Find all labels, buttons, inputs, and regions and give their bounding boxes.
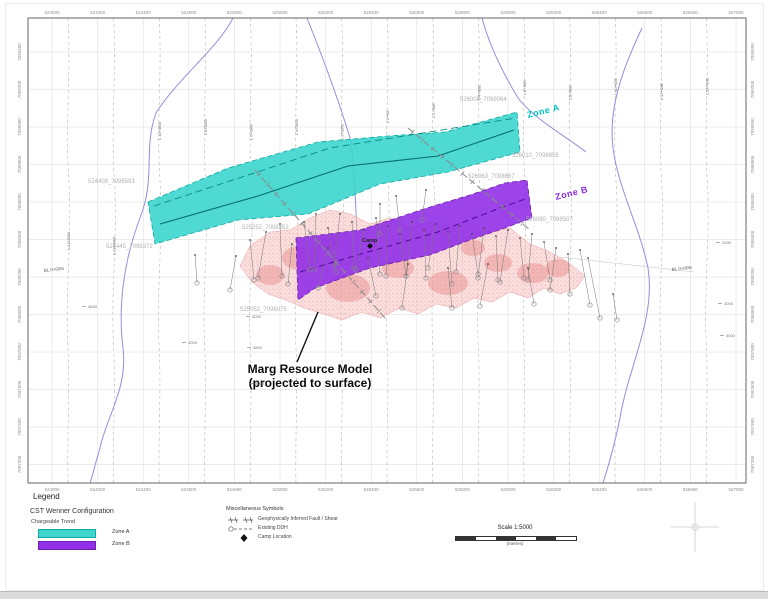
survey-line-label: L 8+00W — [203, 119, 208, 135]
survey-line-label: L 6+00E — [522, 80, 527, 95]
station-label: 4500 — [253, 345, 263, 350]
northing-label-left: 7097400 — [17, 418, 22, 436]
misc-symbols-title: Miscellaneous Symbols — [226, 506, 283, 512]
drillhole-collar — [519, 237, 521, 239]
legend-subtitle: Chargeable Trend — [31, 519, 75, 525]
baseline-label-east: BL 0+00N — [672, 265, 692, 272]
easting-label-bottom: 526800 — [683, 487, 699, 492]
easting-label-bottom: 526200 — [546, 487, 562, 492]
easting-label-top: 526800 — [683, 10, 699, 15]
northing-label-right: 7097200 — [750, 455, 755, 473]
drillhole-collar — [579, 249, 581, 251]
easting-label-top: 524000 — [44, 10, 60, 15]
northing-label-left: 7098400 — [17, 230, 22, 248]
drillhole-collar — [399, 233, 401, 235]
scalebar-title: Scale 1:5000 — [455, 525, 575, 531]
drillhole-collar — [555, 247, 557, 249]
drillhole-collar — [303, 221, 305, 223]
ddh-symbol-icon — [227, 525, 255, 533]
drillhole-collar — [315, 213, 317, 215]
drillhole-collar — [471, 233, 473, 235]
drillhole-collar — [291, 243, 293, 245]
northing-label-right: 7098000 — [750, 305, 755, 323]
easting-label-bottom: 525200 — [318, 487, 334, 492]
drillhole-collar — [483, 227, 485, 229]
drillhole-collar — [327, 227, 329, 229]
easting-label-bottom: 524200 — [90, 487, 106, 492]
station-label: 4000 — [188, 340, 198, 345]
easting-label-bottom: 524800 — [227, 487, 243, 492]
collar-coordinate-label: 525052_7098352 — [242, 225, 289, 231]
drillhole-collar — [435, 223, 437, 225]
northing-label-right: 7097400 — [750, 418, 755, 436]
northing-label-left: 7098200 — [17, 268, 22, 286]
drillhole-collar — [387, 225, 389, 227]
easting-label-top: 524800 — [227, 10, 243, 15]
survey-line-label: L 10+00W — [157, 122, 162, 140]
zone-a-swatch-label: Zone A — [112, 529, 129, 535]
northing-label-left: 7099400 — [17, 43, 22, 61]
fault-symbol-label: Geophysically Inferred Fault / Shear — [258, 516, 338, 522]
northing-label-right: 7097600 — [750, 380, 755, 398]
survey-line-label: L 2+00E — [431, 103, 436, 118]
drillhole-trace — [230, 256, 236, 290]
collar-coordinate-label: 525052_7098075 — [240, 307, 287, 313]
zone-b-label: Zone B — [554, 184, 589, 202]
drillhole-collar — [249, 239, 251, 241]
collar-coordinate-label: 524445_7098372 — [106, 244, 153, 250]
drillhole-collar — [423, 229, 425, 231]
easting-label-top: 525800 — [455, 10, 471, 15]
drillhole-collar — [487, 263, 489, 265]
easting-label-bottom: 525600 — [409, 487, 425, 492]
easting-label-top: 524200 — [90, 10, 106, 15]
northing-label-right: 7099400 — [750, 43, 755, 61]
annotation-leader-line — [297, 312, 318, 362]
northing-label-right: 7098600 — [750, 193, 755, 211]
survey-line-label: L 6+00W — [248, 124, 253, 140]
easting-label-bottom: 524600 — [181, 487, 197, 492]
drillhole-collar — [194, 254, 196, 256]
station-label: 4000 — [726, 333, 736, 338]
annotation-line2: (projected to surface) — [249, 376, 372, 390]
fault-symbol-icon — [227, 516, 255, 524]
camp-symbol-icon — [239, 533, 249, 543]
north-cross-icon — [671, 502, 719, 552]
northing-label-right: 7098800 — [750, 155, 755, 173]
easting-label-top: 525000 — [272, 10, 288, 15]
northing-label-right: 7098200 — [750, 268, 755, 286]
drillhole-collar — [327, 247, 329, 249]
scalebar-units: (metres) — [455, 541, 575, 546]
easting-label-top: 524400 — [136, 10, 152, 15]
northing-label-right: 7099000 — [750, 118, 755, 136]
collar-coordinate-label: 526010_7098858 — [512, 153, 559, 159]
ddh-symbol-label: Existing DDH — [258, 525, 288, 531]
easting-label-bottom: 526600 — [637, 487, 653, 492]
northing-label-left: 7097200 — [17, 455, 22, 473]
easting-label-top: 525600 — [409, 10, 425, 15]
drillhole-collar — [235, 255, 237, 257]
collar-coordinate-label: 524408_7098593 — [88, 179, 135, 185]
baseline-label-west: BL 0+00N — [44, 266, 64, 273]
drillhole-collar — [407, 263, 409, 265]
northing-label-right: 7098400 — [750, 230, 755, 248]
easting-label-top: 524600 — [181, 10, 197, 15]
zone-a-label: Zone A — [526, 102, 561, 120]
drillhole-collar — [367, 257, 369, 259]
zone-b-swatch — [38, 541, 96, 550]
drillhole-collar — [395, 195, 397, 197]
legend-title: Legend — [33, 492, 60, 501]
northing-label-right: 7099200 — [750, 80, 755, 98]
easting-label-bottom: 525400 — [364, 487, 380, 492]
station-label: 4000 — [252, 314, 262, 319]
northing-label-left: 7097600 — [17, 380, 22, 398]
drillhole-collar — [351, 221, 353, 223]
survey-line-label: L 8+00E — [568, 85, 573, 100]
northing-label-left: 7098000 — [17, 305, 22, 323]
drillhole-trace — [588, 258, 600, 318]
drillhole-collar — [425, 189, 427, 191]
station-label: 2000 — [722, 240, 732, 245]
drillhole-collar — [375, 217, 377, 219]
drillhole-collar — [379, 203, 381, 205]
collar-coordinate-label: 526008_7099064 — [460, 97, 507, 103]
collar-coordinate-label: 526080_7098507 — [526, 217, 573, 223]
station-label: 3000 — [724, 301, 734, 306]
drillhole-collar — [543, 241, 545, 243]
easting-label-top: 527000 — [728, 10, 744, 15]
easting-label-bottom: 524400 — [136, 487, 152, 492]
survey-line-label: L 4+00W — [294, 119, 299, 135]
station-label: 4000 — [88, 304, 98, 309]
collar-coordinate-label: 526063_7098667 — [468, 174, 515, 180]
zone-b-swatch-label: Zone B — [112, 541, 130, 547]
easting-label-bottom: 525800 — [455, 487, 471, 492]
legend-config-title: CST Wenner Configuration — [30, 508, 114, 515]
survey-line-label: L 2+00W — [340, 124, 345, 140]
easting-label-bottom: 526400 — [592, 487, 608, 492]
drillhole-collar — [447, 231, 449, 233]
stream-line — [603, 28, 649, 483]
drillhole-collar — [495, 235, 497, 237]
survey-line — [204, 18, 207, 483]
drillhole-trace — [195, 255, 197, 283]
drillhole-collar — [265, 231, 267, 233]
drillhole-collar — [531, 233, 533, 235]
drillhole-collar — [411, 221, 413, 223]
survey-line-label: L 12+00E — [659, 83, 664, 100]
northing-label-left: 7098600 — [17, 193, 22, 211]
drillhole-collar — [507, 229, 509, 231]
northing-label-left: 7098800 — [17, 155, 22, 173]
easting-label-top: 526000 — [500, 10, 516, 15]
easting-label-top: 526200 — [546, 10, 562, 15]
survey-line-label: L 14+00E — [704, 78, 709, 95]
camp-symbol-label: Camp Location — [258, 534, 292, 540]
easting-label-bottom: 526000 — [500, 487, 516, 492]
northing-label-right: 7097800 — [750, 343, 755, 361]
drillhole-collar — [527, 267, 529, 269]
annotation-line1: Marg Resource Model — [248, 362, 373, 376]
drillhole-collar — [447, 267, 449, 269]
drillhole-collar — [587, 257, 589, 259]
easting-label-top: 526400 — [592, 10, 608, 15]
zone-a-swatch — [38, 529, 96, 538]
survey-line-label: L 0+00 — [385, 110, 390, 123]
easting-label-top: 526600 — [637, 10, 653, 15]
easting-label-top: 525200 — [318, 10, 334, 15]
survey-line-label: L 14+00W — [66, 232, 71, 250]
drillhole-collar — [339, 213, 341, 215]
map-canvas: L 14+00WL 12+00WL 10+00WL 8+00WL 6+00WL … — [0, 0, 768, 598]
drillhole-trace — [613, 294, 617, 320]
station-label: 5000 — [255, 381, 265, 386]
drillhole-collar — [363, 229, 365, 231]
drillhole-collar — [567, 253, 569, 255]
survey-line — [158, 18, 161, 483]
easting-label-bottom: 527000 — [728, 487, 744, 492]
map-sheet: { "colors": {"zone_a": "#3fd6ce", "zone_… — [0, 0, 768, 598]
drillhole-collar — [459, 225, 461, 227]
northing-label-left: 7099000 — [17, 118, 22, 136]
drillhole-collar — [612, 293, 614, 295]
northing-label-left: 7099200 — [17, 80, 22, 98]
easting-label-bottom: 525000 — [272, 487, 288, 492]
northing-label-left: 7097800 — [17, 343, 22, 361]
easting-label-top: 525400 — [364, 10, 380, 15]
